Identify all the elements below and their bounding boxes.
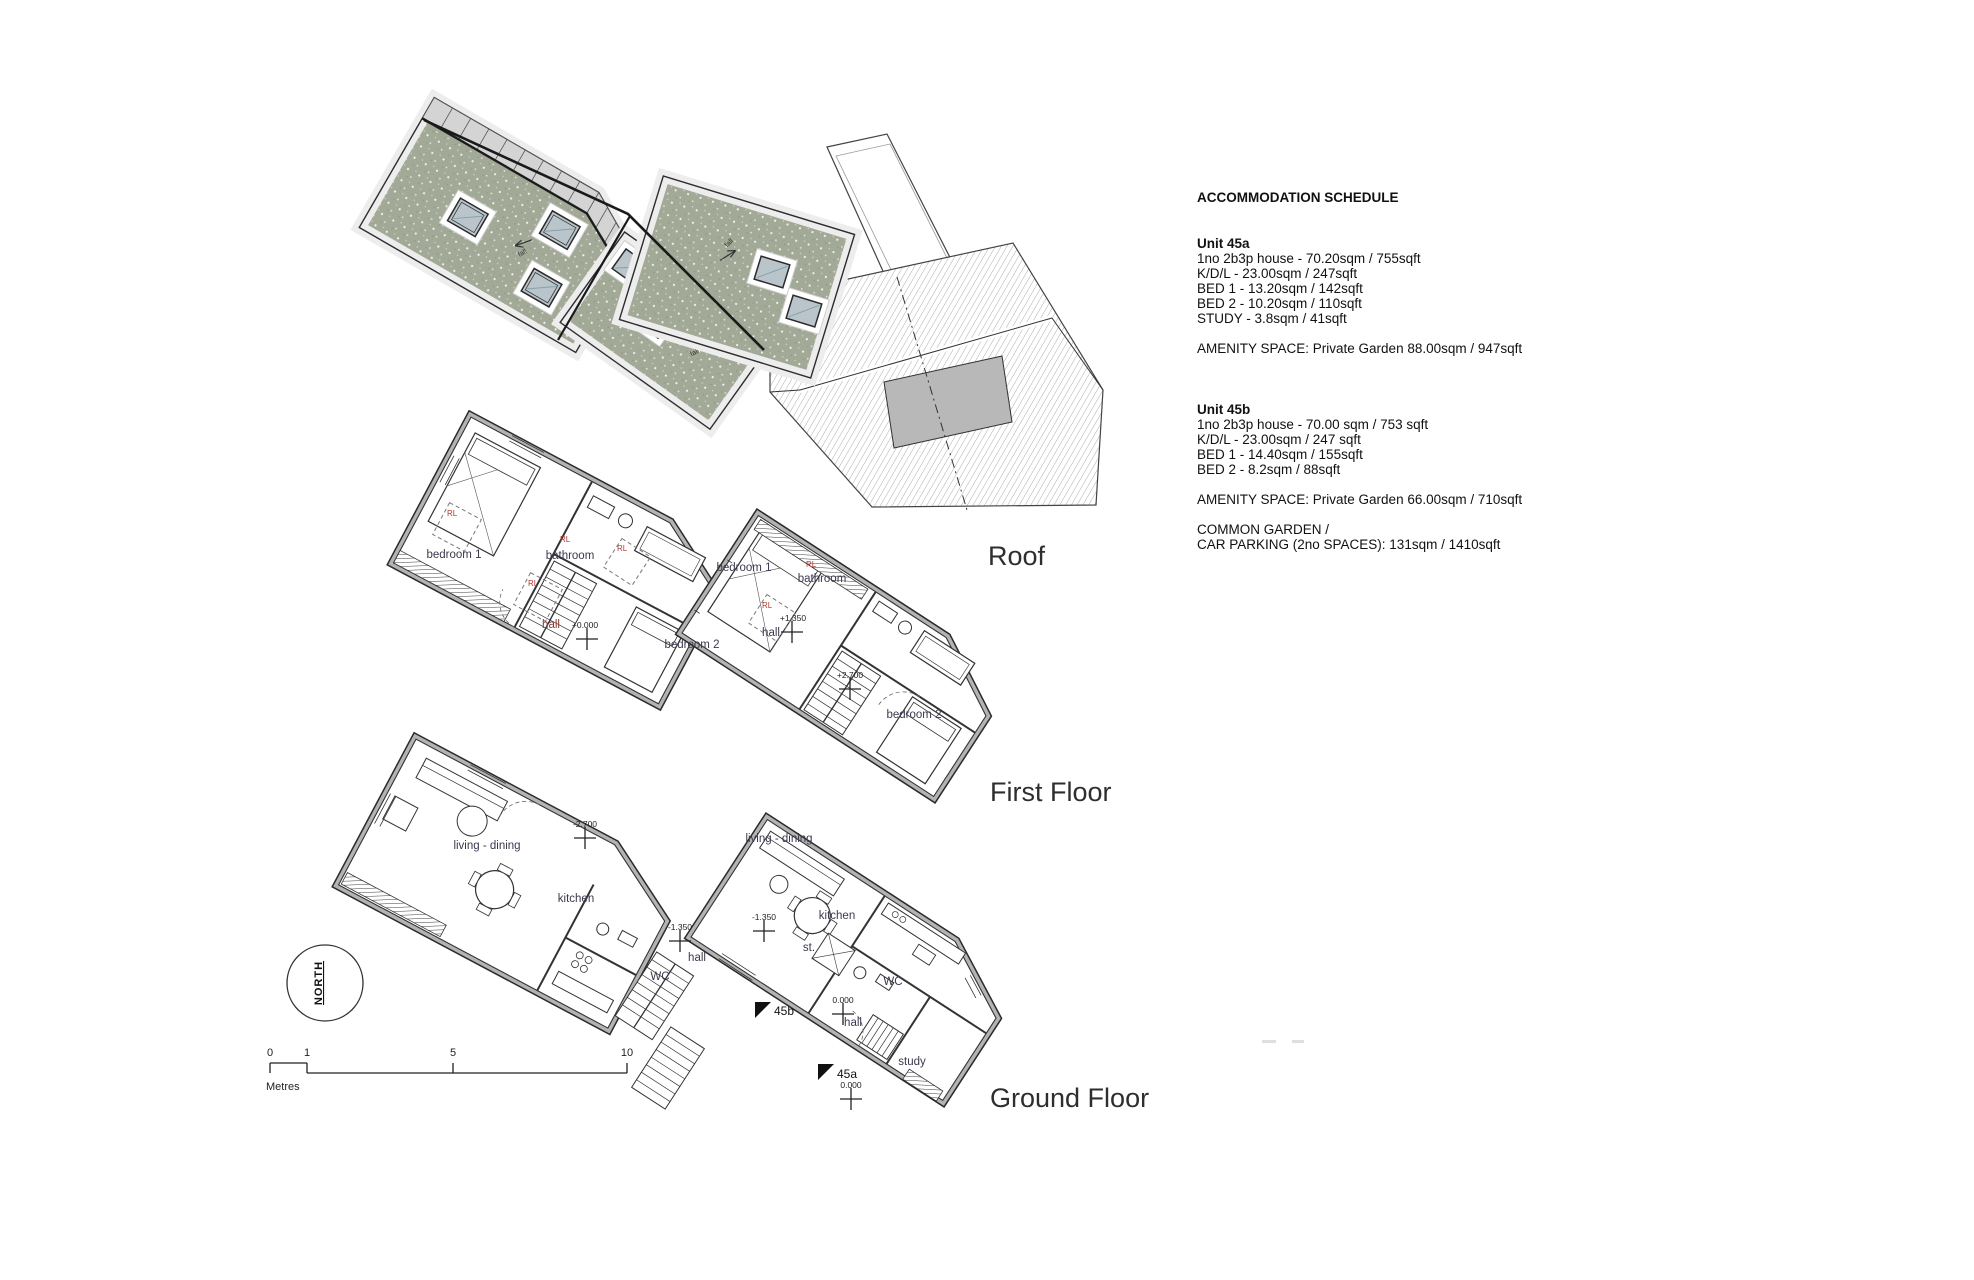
scale-tick-1: 1 — [304, 1047, 310, 1059]
entry-label: 45b — [774, 1004, 794, 1018]
schedule-car-parking: CAR PARKING (2no SPACES): 131sqm / 1410s… — [1197, 537, 1557, 552]
schedule-line: K/D/L - 23.00sqm / 247 sqft — [1197, 432, 1557, 447]
accommodation-schedule: ACCOMMODATION SCHEDULE Unit 45a 1no 2b3p… — [1197, 190, 1557, 552]
room-label-wc: WC — [650, 971, 669, 983]
rl-label: RL — [806, 560, 817, 569]
schedule-amenity-45b: AMENITY SPACE: Private Garden 66.00sqm /… — [1197, 492, 1557, 507]
rl-label: RL — [560, 535, 571, 544]
first-floor-title: First Floor — [990, 777, 1112, 807]
entry-label: 45a — [837, 1067, 857, 1081]
site-plan-drawing: fall fall — [0, 0, 1974, 1280]
rl-label: RL — [447, 509, 458, 518]
level-marker: 0.000 — [840, 1080, 862, 1110]
room-label-store: st. — [803, 942, 815, 954]
scale-tick-10: 10 — [621, 1047, 633, 1059]
gf-unit-45b — [689, 820, 1019, 1104]
room-label-hall: hall — [844, 1017, 862, 1029]
schedule-title: ACCOMMODATION SCHEDULE — [1197, 190, 1557, 205]
room-label-wc: WC — [883, 976, 902, 988]
room-label-bathroom: bathroom — [546, 550, 595, 562]
room-label-bedroom2: bedroom 2 — [665, 639, 720, 651]
scale-bar: 0 1 5 10 Metres — [266, 1047, 633, 1093]
schedule-line: BED 2 - 10.20sqm / 110sqft — [1197, 296, 1557, 311]
room-label-hall: hall — [688, 952, 706, 964]
ground-floor-title: Ground Floor — [990, 1083, 1149, 1113]
ground-floor-plan: 45b 45a living - dining kitchen WC hall … — [339, 737, 1019, 1110]
scale-tick-0: 0 — [267, 1047, 273, 1059]
room-label-bedroom1: bedroom 1 — [717, 562, 772, 574]
room-label-hall: hall — [542, 619, 560, 631]
schedule-line: 1no 2b3p house - 70.20sqm / 755sqft — [1197, 251, 1557, 266]
scale-bar-line — [270, 1063, 627, 1073]
room-label-hall: hall — [762, 627, 780, 639]
north-label: NORTH — [313, 961, 325, 1005]
rl-label: RL — [528, 579, 539, 588]
room-label-living: living - dining — [745, 833, 812, 845]
faint-artifact — [1262, 1040, 1304, 1043]
ff-unit-45b — [680, 515, 1010, 797]
schedule-line: 1no 2b3p house - 70.00 sqm / 753 sqft — [1197, 417, 1557, 432]
room-label-bedroom1: bedroom 1 — [427, 549, 482, 561]
room-label-bedroom2: bedroom 2 — [887, 709, 942, 721]
entrance-marker-45a: 45a — [818, 1064, 857, 1081]
level-value: +1.350 — [780, 613, 807, 623]
rl-label: RL — [617, 544, 628, 553]
north-circle — [287, 945, 363, 1021]
schedule-common-garden: COMMON GARDEN / — [1197, 522, 1557, 537]
gf-unit-45a — [339, 737, 687, 1029]
roof-title: Roof — [988, 541, 1046, 571]
schedule-line: BED 1 - 14.40sqm / 155sqft — [1197, 447, 1557, 462]
scale-unit-label: Metres — [266, 1081, 300, 1093]
schedule-line: BED 2 - 8.2sqm / 88sqft — [1197, 462, 1557, 477]
level-value: +0.000 — [572, 620, 599, 630]
room-label-kitchen: kitchen — [558, 893, 594, 905]
schedule-line: BED 1 - 13.20sqm / 142sqft — [1197, 281, 1557, 296]
schedule-unit-45a-name: Unit 45a — [1197, 236, 1557, 251]
schedule-unit-45b-name: Unit 45b — [1197, 402, 1557, 417]
north-arrow: NORTH — [287, 945, 363, 1021]
scale-tick-5: 5 — [450, 1047, 456, 1059]
room-label-bathroom: bathroom — [798, 573, 847, 585]
schedule-amenity-45a: AMENITY SPACE: Private Garden 88.00sqm /… — [1197, 341, 1557, 356]
room-label-living: living - dining — [453, 840, 520, 852]
external-stair-lower — [632, 1027, 705, 1109]
entrance-marker-45b: 45b — [755, 1002, 794, 1018]
architectural-drawing-sheet: fall fall — [0, 0, 1974, 1280]
schedule-line: STUDY - 3.8sqm / 41sqft — [1197, 311, 1557, 326]
rl-label: RL — [762, 601, 773, 610]
room-label-kitchen: kitchen — [819, 910, 855, 922]
schedule-line: K/D/L - 23.00sqm / 247sqft — [1197, 266, 1557, 281]
room-label-study: study — [898, 1056, 926, 1068]
